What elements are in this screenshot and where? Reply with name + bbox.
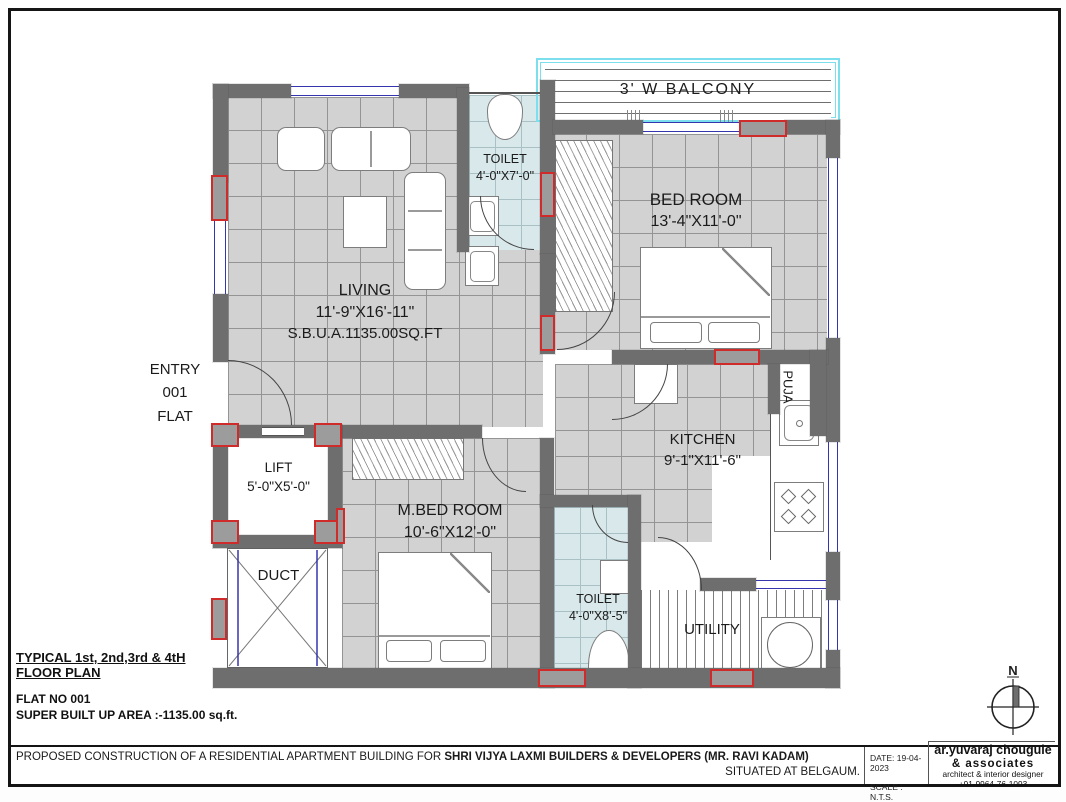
- bed-sheet-line: [379, 635, 490, 637]
- architect-block: ar.yuvaraj chougule & associates archite…: [930, 744, 1056, 790]
- column: [710, 669, 754, 687]
- wash-basin: [465, 246, 499, 286]
- duct-label: DUCT: [231, 566, 326, 587]
- typical-floor-line2: FLOOR PLAN: [16, 665, 346, 680]
- entry-label: ENTRY 001 FLAT: [140, 358, 210, 428]
- column: [211, 520, 239, 544]
- wall: [213, 84, 228, 182]
- wall: [826, 120, 840, 158]
- scale-value: SCALE : N.T.S.: [870, 782, 926, 802]
- sofa-long: [404, 172, 446, 290]
- north-arrow: N: [984, 662, 1042, 740]
- wall: [469, 92, 540, 94]
- master-bedroom-size: 10'-6"X12'-0": [350, 522, 550, 544]
- footer-divider: [8, 745, 1058, 747]
- toilet-bottom-size: 4'-0"X8'-5": [548, 608, 648, 625]
- wall: [540, 438, 554, 688]
- pillow: [440, 640, 486, 662]
- wardrobe: [352, 438, 464, 480]
- wall: [810, 350, 826, 436]
- entry-line3: FLAT: [140, 405, 210, 428]
- sofa-divider: [408, 249, 442, 251]
- window: [291, 86, 399, 96]
- column: [314, 423, 342, 447]
- puja-label: PUJA: [766, 360, 810, 414]
- window: [828, 442, 838, 552]
- bed-fold-corner: [722, 248, 770, 296]
- wall: [826, 338, 840, 442]
- flat-no: FLAT NO 001: [16, 692, 346, 706]
- wall: [826, 552, 840, 600]
- date-value: DATE: 19-04-2023: [870, 753, 926, 773]
- armchair: [277, 127, 325, 171]
- master-bedroom-label: M.BED ROOM 10'-6"X12'-0": [350, 500, 550, 544]
- toilet-top-name: TOILET: [455, 151, 555, 168]
- lift-door: [262, 427, 304, 436]
- lift-name: LIFT: [231, 459, 326, 478]
- wall: [700, 578, 756, 591]
- footer-hrule: [928, 741, 1055, 742]
- entry-line2: 001: [140, 381, 210, 404]
- burner: [801, 489, 817, 505]
- window: [643, 122, 739, 132]
- sofa-divider: [408, 210, 442, 212]
- lift-size: 5'-0"X5'-0": [231, 478, 326, 497]
- proposal-client: SHRI VIJYA LAXMI BUILDERS & DEVELOPERS (…: [444, 751, 808, 763]
- pillow: [650, 322, 702, 343]
- architect-phone: +91-9964-76-1093: [930, 780, 1056, 790]
- footer-vrule: [928, 741, 929, 784]
- column: [540, 315, 555, 351]
- architect-name: ar.yuvaraj chougule: [930, 744, 1056, 758]
- coffee-table: [343, 196, 387, 248]
- living-sbua: S.B.U.A.1135.00SQ.FT: [265, 324, 465, 345]
- pillow: [386, 640, 432, 662]
- kitchen-size: 9'-1"X11'-6": [610, 451, 795, 472]
- burner: [781, 509, 797, 525]
- living-size: 11'-9"X16'-11": [265, 302, 465, 324]
- living-label: LIVING 11'-9"X16'-11" S.B.U.A.1135.00SQ.…: [265, 280, 465, 345]
- column: [739, 120, 787, 137]
- master-bedroom-name: M.BED ROOM: [350, 500, 550, 522]
- north-label: N: [1008, 663, 1017, 678]
- toilet-bottom-label: TOILET 4'-0"X8'-5": [548, 591, 648, 626]
- bedroom-name: BED ROOM: [596, 188, 796, 211]
- column: [714, 349, 760, 365]
- column: [211, 423, 239, 447]
- toilet-bottom-name: TOILET: [548, 591, 648, 608]
- toilet-top-size: 4'-0"X7'-0": [455, 168, 555, 185]
- wall: [213, 294, 228, 362]
- bed-fold-corner: [450, 553, 490, 593]
- burner: [801, 509, 817, 525]
- proposal-text: PROPOSED CONSTRUCTION OF A RESIDENTIAL A…: [16, 751, 860, 778]
- typical-floor-line1: TYPICAL 1st, 2nd,3rd & 4tH: [16, 650, 346, 665]
- puja-name: PUJA: [779, 370, 797, 403]
- wall: [553, 120, 643, 134]
- wall: [340, 425, 482, 438]
- living-name: LIVING: [265, 280, 465, 302]
- date-scale-block: DATE: 19-04-2023 SCALE : N.T.S.: [870, 753, 926, 802]
- sofa-two-seat: [331, 127, 411, 171]
- balcony-label: 3' W BALCONY: [546, 79, 830, 101]
- window: [756, 580, 826, 589]
- burner: [781, 489, 797, 505]
- toilet-top-label: TOILET 4'-0"X7'-0": [455, 151, 555, 186]
- pillow: [708, 322, 760, 343]
- column: [538, 669, 586, 687]
- stove: [774, 482, 824, 532]
- sink-drain: [796, 420, 803, 427]
- super-built-up-area: SUPER BUILT UP AREA :-1135.00 sq.ft.: [16, 708, 346, 722]
- basin-inner: [470, 251, 495, 282]
- bed-sheet-line: [641, 316, 770, 318]
- situated-at: SITUATED AT BELGAUM.: [16, 766, 860, 778]
- lift-label: LIFT 5'-0"X5'-0": [231, 459, 326, 496]
- sofa-divider: [370, 131, 372, 167]
- wash-basin: [600, 560, 630, 594]
- column: [211, 175, 228, 221]
- footer-vrule: [864, 747, 865, 784]
- window: [828, 158, 838, 338]
- utility-label: UTILITY: [652, 620, 772, 641]
- title-block: TYPICAL 1st, 2nd,3rd & 4tH FLOOR PLAN FL…: [16, 650, 346, 722]
- kitchen-label: KITCHEN 9'-1"X11'-6": [610, 430, 795, 471]
- column: [336, 508, 345, 544]
- bedroom-label: BED ROOM 13'-4"X11'-0": [596, 188, 796, 234]
- washer-drum: [767, 622, 813, 668]
- bedroom-size: 13'-4"X11'-0": [596, 211, 796, 233]
- column: [211, 598, 227, 640]
- window: [828, 600, 838, 650]
- entry-line1: ENTRY: [140, 358, 210, 381]
- kitchen-name: KITCHEN: [610, 430, 795, 451]
- proposal-prefix: PROPOSED CONSTRUCTION OF A RESIDENTIAL A…: [16, 751, 444, 763]
